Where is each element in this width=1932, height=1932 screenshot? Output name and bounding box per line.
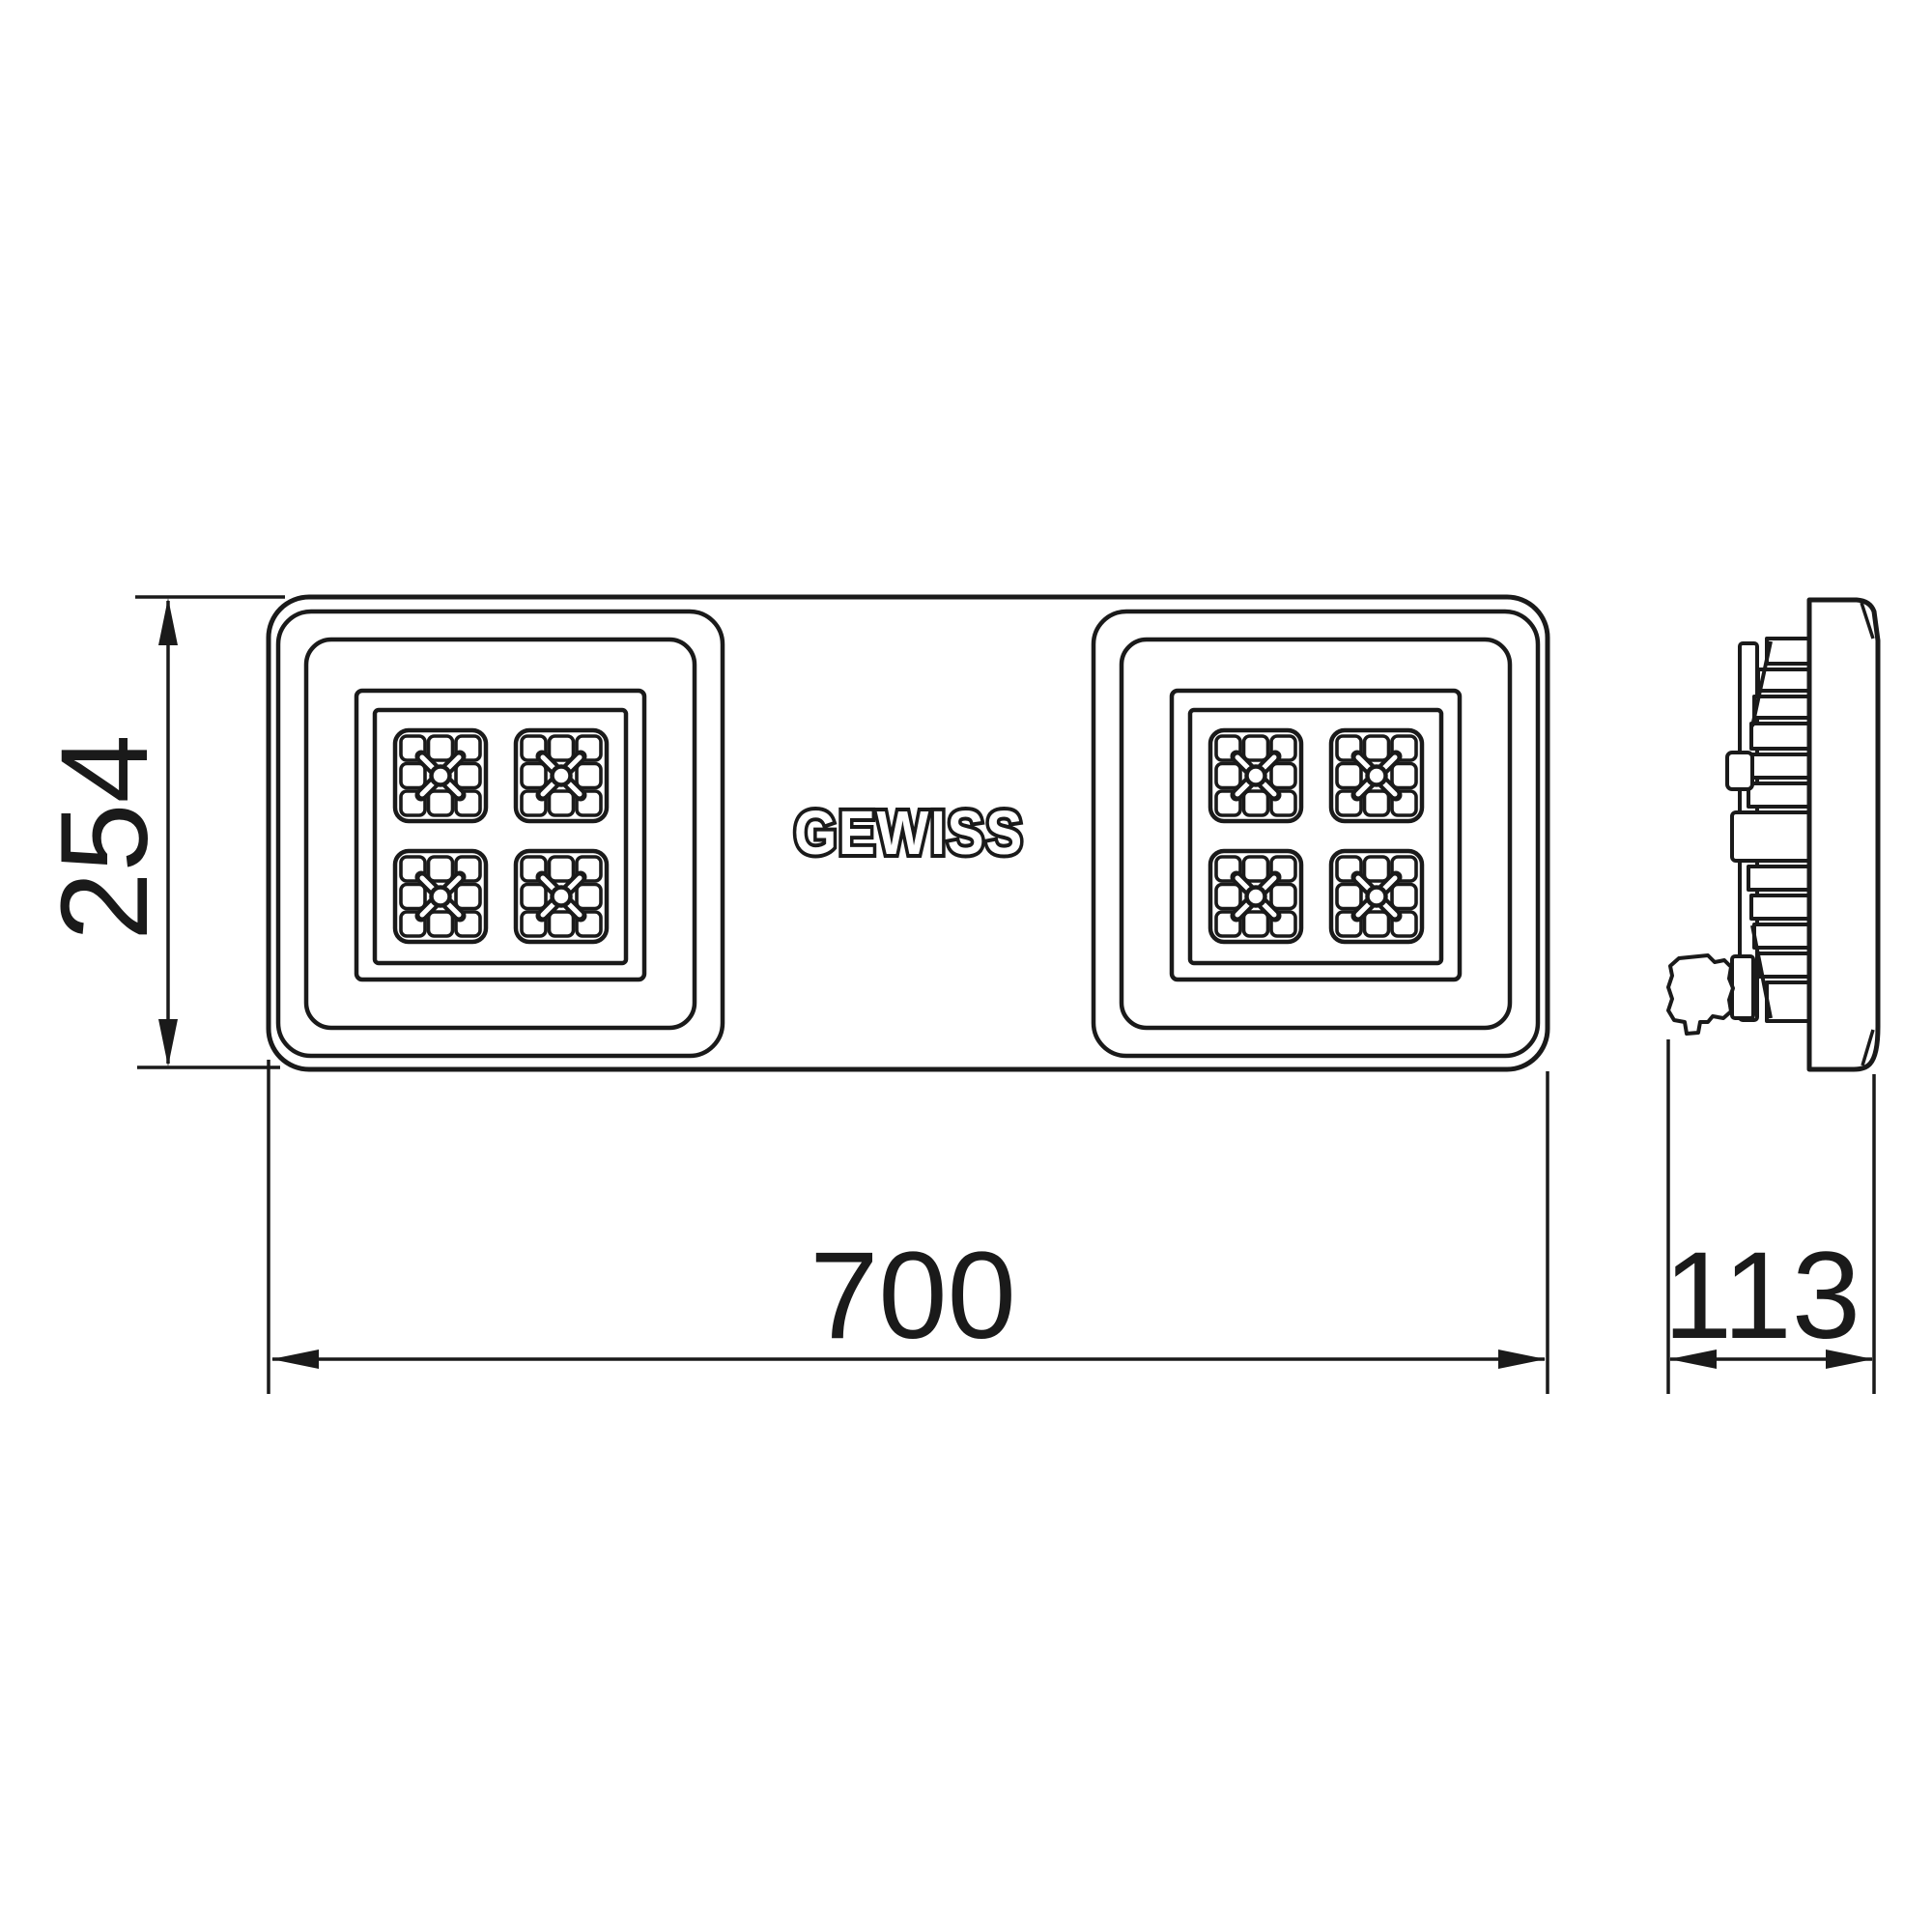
brand-logo: GEWISS — [794, 798, 1024, 867]
heatsink-fin — [1754, 696, 1811, 718]
heatsink-fin — [1754, 924, 1811, 948]
technical-drawing-page: GEWISS 254 — [0, 0, 1932, 1932]
cable-gland — [1668, 955, 1733, 1034]
heatsink-fin — [1767, 639, 1811, 664]
heatsink-fin — [1751, 724, 1811, 749]
front-view: GEWISS — [269, 597, 1548, 1069]
depth-dimension-label: 113 — [1663, 1227, 1861, 1365]
arrow-up-icon — [158, 598, 178, 645]
heatsink-fin — [1751, 754, 1811, 778]
heatsink-fin — [1748, 783, 1811, 807]
dimension-width: 700 — [269, 1060, 1548, 1394]
heatsink-center-block — [1732, 812, 1811, 861]
led-module-right — [1094, 611, 1538, 1056]
mounting-lug — [1727, 753, 1752, 789]
height-dimension-label: 254 — [36, 734, 174, 941]
cable-gland-bracket — [1732, 956, 1753, 1018]
heatsink-fin — [1751, 895, 1811, 919]
heatsink-fin — [1748, 867, 1811, 890]
width-dimension-label: 700 — [810, 1227, 1016, 1365]
arrow-down-icon — [158, 1019, 178, 1066]
heatsink-fin — [1758, 669, 1811, 691]
led-module-left — [278, 611, 723, 1056]
side-view — [1668, 600, 1878, 1069]
dimension-height: 254 — [36, 597, 285, 1067]
arrow-right-icon — [1498, 1350, 1546, 1369]
arrow-left-icon — [271, 1350, 319, 1369]
front-face-profile — [1809, 600, 1878, 1069]
floodlight-dimension-drawing: GEWISS 254 — [0, 0, 1932, 1932]
dimension-depth: 113 — [1663, 1039, 1874, 1394]
heatsink-fin — [1767, 982, 1811, 1021]
heatsink-fin — [1758, 953, 1811, 977]
